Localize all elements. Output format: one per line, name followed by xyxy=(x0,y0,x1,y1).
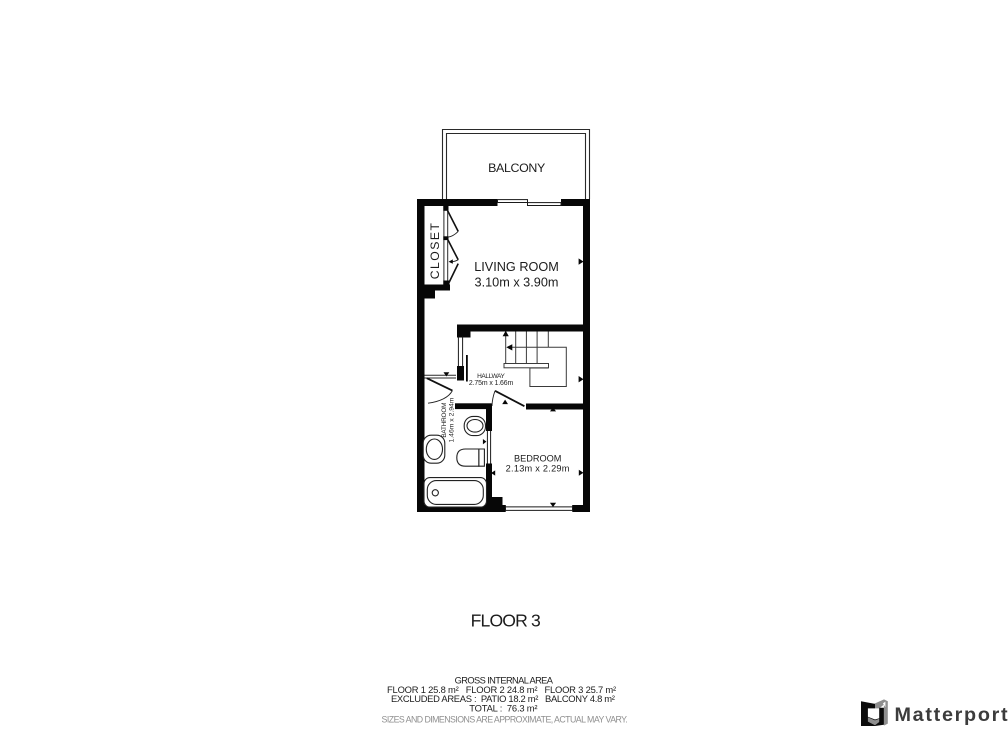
svg-text:BATHROOM: BATHROOM xyxy=(441,403,448,438)
svg-text:TOTAL : 76.3 m²: TOTAL : 76.3 m² xyxy=(469,703,537,714)
svg-text:BEDROOM: BEDROOM xyxy=(514,453,561,463)
svg-text:2.13m x 2.29m: 2.13m x 2.29m xyxy=(506,464,570,474)
svg-text:3.10m x 3.90m: 3.10m x 3.90m xyxy=(475,275,559,289)
svg-text:BALCONY: BALCONY xyxy=(488,161,545,175)
svg-text:HALLWAY: HALLWAY xyxy=(477,373,505,380)
svg-text:LIVING ROOM: LIVING ROOM xyxy=(474,260,559,274)
svg-text:2.75m x 1.66m: 2.75m x 1.66m xyxy=(469,380,514,387)
svg-text:SIZES AND DIMENSIONS ARE APPRO: SIZES AND DIMENSIONS ARE APPROXIMATE, AC… xyxy=(382,715,628,725)
svg-text:FLOOR 3: FLOOR 3 xyxy=(471,611,541,631)
svg-text:Matterport: Matterport xyxy=(895,704,1008,726)
svg-text:1.46m x 2.94m: 1.46m x 2.94m xyxy=(449,397,456,442)
svg-text:CLOSET: CLOSET xyxy=(428,222,442,280)
